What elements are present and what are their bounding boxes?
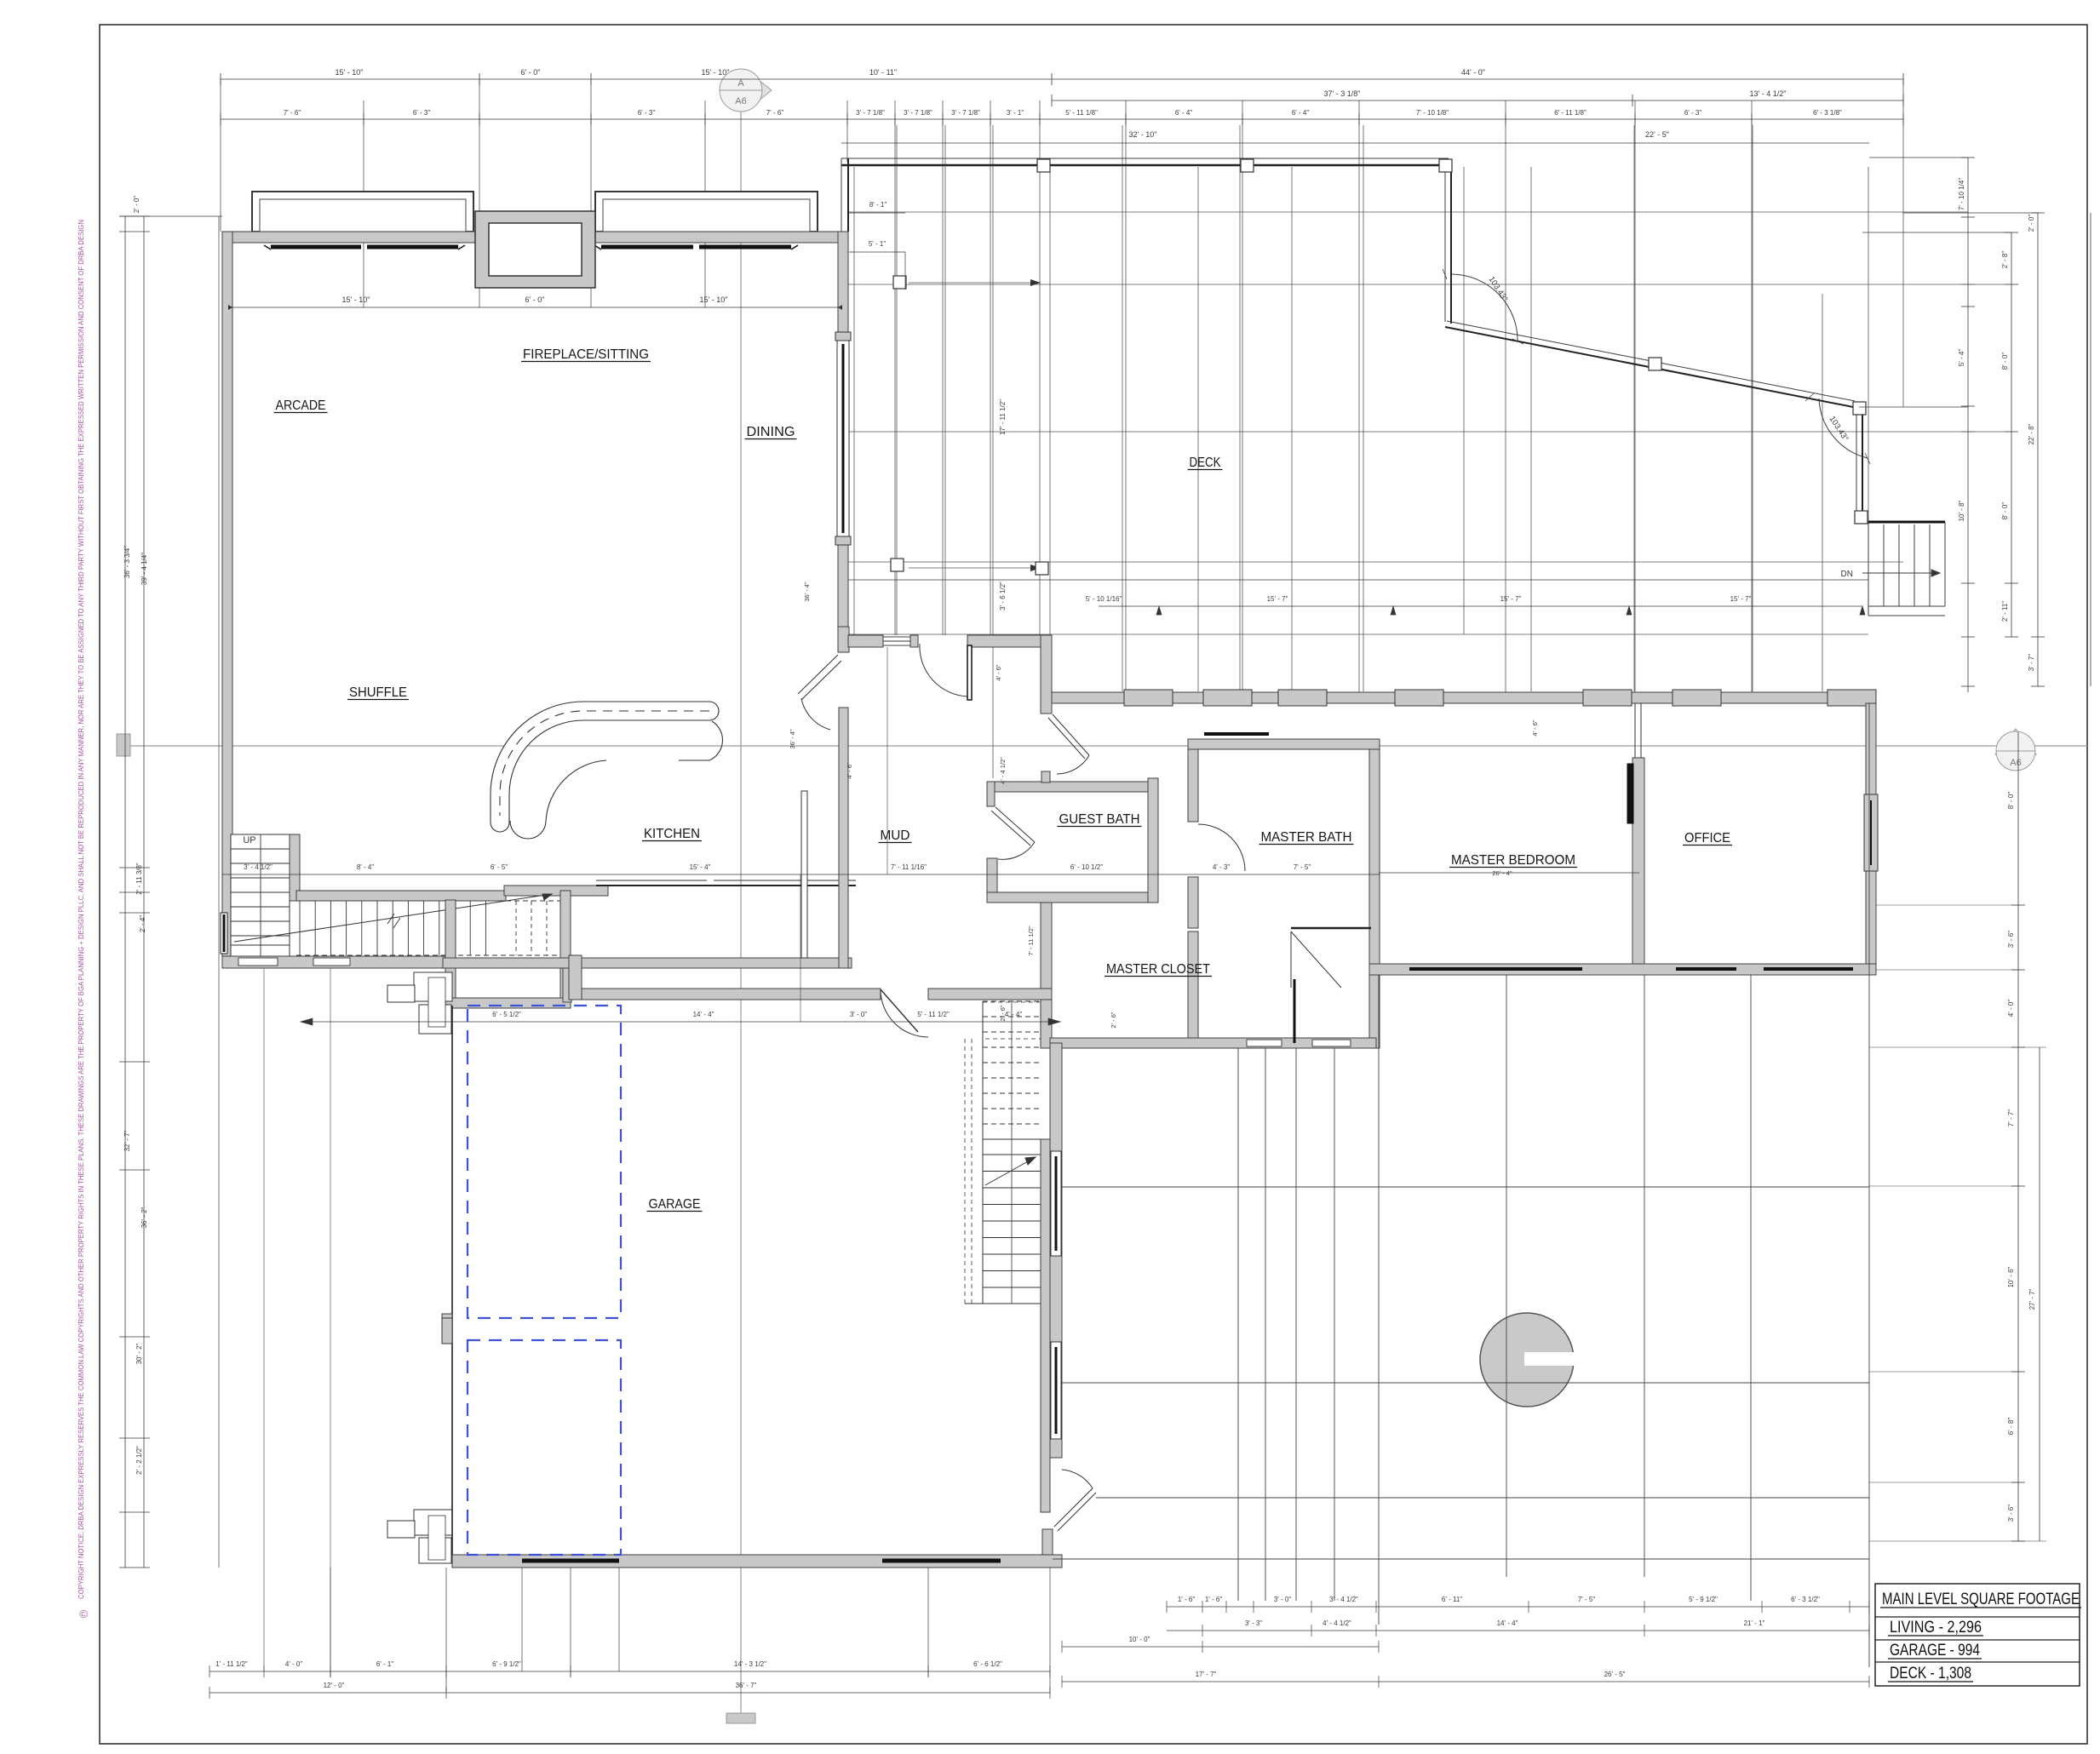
svg-text:6' - 3 1/2": 6' - 3 1/2"	[1791, 1596, 1820, 1603]
svg-text:2' - 6": 2' - 6"	[1110, 1012, 1117, 1028]
svg-text:DECK: DECK	[1190, 456, 1222, 470]
svg-text:4' - 3": 4' - 3"	[1213, 863, 1231, 871]
svg-text:7' - 5": 7' - 5"	[1294, 863, 1311, 871]
svg-text:8' - 4": 8' - 4"	[357, 863, 375, 871]
svg-text:LIVING - 2,296: LIVING - 2,296	[1890, 1618, 1982, 1636]
svg-text:6' - 3": 6' - 3"	[1684, 109, 1702, 117]
svg-text:8' - 0": 8' - 0"	[2001, 353, 2009, 370]
svg-text:5' - 11 1/8": 5' - 11 1/8"	[1065, 109, 1098, 117]
svg-text:COPYRIGHT NOTICE: DRBA DESIGN: COPYRIGHT NOTICE: DRBA DESIGN EXPRESSLY …	[77, 220, 85, 1599]
svg-text:6' - 0": 6' - 0"	[525, 295, 545, 304]
svg-text:MASTER BEDROOM: MASTER BEDROOM	[1451, 853, 1575, 868]
svg-text:FIREPLACE/SITTING: FIREPLACE/SITTING	[523, 347, 649, 362]
svg-text:10' - 6": 10' - 6"	[2007, 1266, 2015, 1287]
svg-text:36' - 4": 36' - 4"	[789, 729, 796, 749]
svg-text:6' - 10 1/2": 6' - 10 1/2"	[1070, 863, 1103, 871]
svg-text:22' - 5": 22' - 5"	[1645, 130, 1669, 139]
svg-text:1' - 6": 1' - 6"	[1178, 1596, 1196, 1603]
svg-text:36' - 7": 36' - 7"	[736, 1682, 757, 1689]
svg-text:17' - 11 1/2": 17' - 11 1/2"	[999, 399, 1007, 435]
svg-text:3' - 7 1/8": 3' - 7 1/8"	[856, 109, 885, 117]
svg-text:GARAGE: GARAGE	[649, 1197, 701, 1212]
svg-text:15' - 10": 15' - 10"	[700, 295, 728, 304]
svg-text:10' - 0": 10' - 0"	[1129, 1636, 1150, 1643]
svg-text:36' - 3 3/4": 36' - 3 3/4"	[123, 546, 131, 578]
svg-text:15' - 10": 15' - 10"	[342, 295, 370, 304]
svg-text:6' - 3 1/8": 6' - 3 1/8"	[1813, 109, 1842, 117]
svg-text:15' - 7": 15' - 7"	[1730, 595, 1752, 603]
svg-text:3' - 7": 3' - 7"	[2028, 654, 2035, 672]
svg-text:6' - 11": 6' - 11"	[1442, 1596, 1462, 1603]
svg-text:8' - 0": 8' - 0"	[2007, 792, 2015, 810]
svg-text:17' - 7": 17' - 7"	[1196, 1671, 1217, 1678]
svg-text:7' - 11 1/2": 7' - 11 1/2"	[1027, 926, 1035, 956]
svg-text:30' - 2": 30' - 2"	[135, 1343, 143, 1364]
svg-text:15' - 7": 15' - 7"	[1500, 595, 1522, 603]
svg-text:6' - 9 1/2": 6' - 9 1/2"	[492, 1660, 521, 1668]
svg-text:MASTER BATH: MASTER BATH	[1261, 830, 1352, 845]
svg-text:4' - 4": 4' - 4"	[1005, 1011, 1023, 1018]
svg-text:DECK - 1,308: DECK - 1,308	[1890, 1664, 1971, 1682]
svg-text:1' - 6": 1' - 6"	[1205, 1596, 1223, 1603]
svg-text:6' - 11 1/8": 6' - 11 1/8"	[1554, 109, 1586, 117]
svg-text:37' - 3 1/8": 37' - 3 1/8"	[1324, 89, 1361, 98]
svg-text:6' - 0": 6' - 0"	[521, 68, 541, 77]
svg-text:2' - 0": 2' - 0"	[133, 196, 141, 214]
svg-text:7' - 5": 7' - 5"	[1578, 1596, 1596, 1603]
svg-text:32' - 10": 32' - 10"	[1129, 130, 1157, 139]
svg-text:22' - 8": 22' - 8"	[2028, 423, 2035, 444]
svg-text:3' - 4 1/2": 3' - 4 1/2"	[244, 863, 273, 871]
svg-text:OFFICE: OFFICE	[1684, 831, 1730, 845]
svg-text:26' - 5": 26' - 5"	[1604, 1671, 1626, 1678]
svg-text:KITCHEN: KITCHEN	[644, 827, 700, 841]
svg-text:14' - 3 1/2": 14' - 3 1/2"	[734, 1660, 766, 1668]
svg-text:5' - 10 1/16": 5' - 10 1/16"	[1086, 595, 1122, 603]
svg-text:4' - 0": 4' - 0"	[2007, 1000, 2015, 1017]
svg-text:39' - 4 1/4": 39' - 4 1/4"	[141, 553, 148, 585]
svg-text:10' - 8": 10' - 8"	[1958, 500, 1965, 521]
svg-text:ARCADE: ARCADE	[276, 398, 326, 413]
svg-text:3' - 1": 3' - 1"	[1007, 109, 1024, 117]
svg-text:6' - 5": 6' - 5"	[491, 863, 508, 871]
svg-text:5' - 9 1/2": 5' - 9 1/2"	[1689, 1596, 1718, 1603]
svg-text:3' - 4 1/2": 3' - 4 1/2"	[1329, 1596, 1358, 1603]
svg-text:MAIN LEVEL SQUARE FOOTAGE: MAIN LEVEL SQUARE FOOTAGE	[1882, 1590, 2080, 1608]
svg-text:14' - 4": 14' - 4"	[1497, 1619, 1518, 1627]
svg-text:6' - 8": 6' - 8"	[2007, 1418, 2015, 1436]
svg-text:MUD: MUD	[881, 828, 910, 843]
svg-text:3' - 6": 3' - 6"	[2007, 1505, 2015, 1522]
svg-text:3' - 7 1/8": 3' - 7 1/8"	[904, 109, 932, 117]
svg-text:4' - 6": 4' - 6"	[846, 762, 853, 778]
svg-text:5' - 11 1/2": 5' - 11 1/2"	[917, 1011, 950, 1018]
svg-text:32' - 7": 32' - 7"	[123, 1130, 131, 1151]
svg-text:2' - 11": 2' - 11"	[2001, 601, 2009, 622]
svg-text:6' - 3": 6' - 3"	[413, 109, 431, 117]
svg-text:3' - 0": 3' - 0"	[1274, 1596, 1292, 1603]
svg-text:15' - 10": 15' - 10"	[336, 68, 364, 77]
svg-text:©: ©	[79, 1608, 88, 1620]
svg-text:7' - 11 1/16": 7' - 11 1/16"	[891, 863, 927, 871]
svg-text:4' - 0": 4' - 0"	[285, 1660, 303, 1668]
svg-text:6' - 3": 6' - 3"	[638, 109, 656, 117]
svg-text:3' - 3": 3' - 3"	[1245, 1619, 1263, 1627]
svg-text:5' - 1": 5' - 1"	[869, 240, 886, 248]
svg-text:2' - 8": 2' - 8"	[2001, 251, 2009, 269]
svg-text:15' - 7": 15' - 7"	[1267, 595, 1288, 603]
svg-text:3' - 7 1/8": 3' - 7 1/8"	[951, 109, 980, 117]
svg-text:15' - 4": 15' - 4"	[690, 863, 711, 871]
svg-text:8' - 0": 8' - 0"	[2001, 502, 2009, 520]
svg-text:2' - 4": 2' - 4"	[139, 915, 146, 933]
svg-text:5' - 4": 5' - 4"	[1958, 349, 1965, 367]
svg-text:DN: DN	[1841, 570, 1853, 579]
svg-text:26' - 4": 26' - 4"	[1492, 869, 1512, 877]
svg-text:4' - 6": 4' - 6"	[1531, 719, 1539, 736]
svg-text:7' - 10 1/8": 7' - 10 1/8"	[1416, 109, 1449, 117]
svg-text:12' - 0": 12' - 0"	[324, 1682, 345, 1689]
svg-text:MASTER CLOSET: MASTER CLOSET	[1106, 962, 1210, 977]
svg-text:2' - 6": 2' - 6"	[999, 1005, 1007, 1021]
svg-text:3' - 6 1/2": 3' - 6 1/2"	[999, 582, 1007, 610]
svg-text:6' - 4": 6' - 4"	[1292, 109, 1310, 117]
svg-text:4' - 4 1/2": 4' - 4 1/2"	[999, 757, 1007, 784]
svg-text:7' - 6": 7' - 6"	[284, 109, 301, 117]
svg-text:7' - 10 1/4": 7' - 10 1/4"	[1958, 178, 1965, 210]
svg-text:1' - 11 1/2": 1' - 11 1/2"	[215, 1660, 248, 1668]
svg-text:4' - 4 1/2": 4' - 4 1/2"	[1323, 1619, 1351, 1627]
svg-text:15' - 10": 15' - 10"	[702, 68, 730, 77]
svg-text:2' - 2 1/2": 2' - 2 1/2"	[135, 1446, 143, 1475]
svg-text:A: A	[737, 78, 744, 89]
svg-text:3' - 0": 3' - 0"	[850, 1011, 868, 1018]
svg-text:GARAGE - 994: GARAGE - 994	[1890, 1641, 1980, 1659]
svg-text:7' - 6": 7' - 6"	[766, 109, 784, 117]
svg-text:14' - 4": 14' - 4"	[693, 1011, 714, 1018]
svg-text:21' - 1": 21' - 1"	[1744, 1619, 1765, 1627]
svg-text:UP: UP	[243, 835, 255, 845]
svg-text:10' - 11": 10' - 11"	[869, 68, 897, 77]
svg-text:2' - 0": 2' - 0"	[2028, 215, 2035, 232]
svg-text:3' - 6": 3' - 6"	[2007, 931, 2015, 949]
svg-text:4' - 6": 4' - 6"	[995, 664, 1002, 680]
svg-text:13' - 4 1/2": 13' - 4 1/2"	[1750, 89, 1787, 98]
svg-text:44' - 0": 44' - 0"	[1461, 68, 1485, 77]
svg-text:GUEST BATH: GUEST BATH	[1059, 812, 1140, 827]
svg-text:27' - 7": 27' - 7"	[2028, 1288, 2036, 1310]
svg-text:6' - 5 1/2": 6' - 5 1/2"	[492, 1011, 521, 1018]
svg-text:8' - 1": 8' - 1"	[869, 201, 887, 209]
svg-text:36' - 2": 36' - 2"	[141, 1207, 148, 1228]
svg-text:DINING: DINING	[747, 425, 795, 439]
svg-text:A6: A6	[735, 96, 746, 106]
svg-text:6' - 4": 6' - 4"	[1175, 109, 1193, 117]
svg-text:7' - 7": 7' - 7"	[2007, 1109, 2015, 1127]
svg-text:2' - 11 3/8": 2' - 11 3/8"	[135, 863, 143, 895]
svg-text:6' - 1": 6' - 1"	[376, 1660, 394, 1668]
svg-text:6' - 6 1/2": 6' - 6 1/2"	[973, 1660, 1002, 1668]
svg-text:A6: A6	[2010, 758, 2021, 768]
svg-text:SHUFFLE: SHUFFLE	[349, 685, 407, 700]
svg-text:36' - 4": 36' - 4"	[803, 582, 811, 602]
